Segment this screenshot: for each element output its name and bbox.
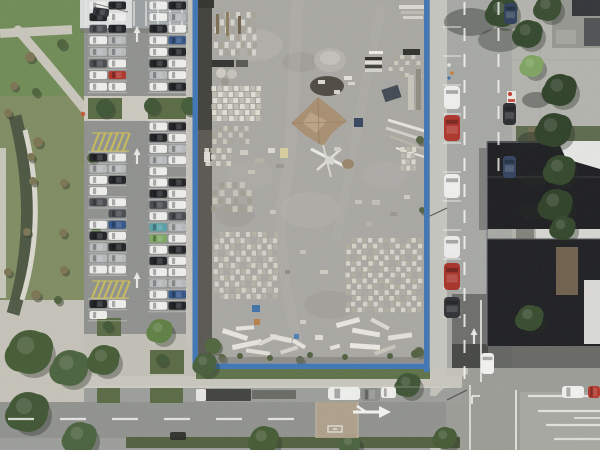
aerial-photo <box>0 0 600 450</box>
aerial-canvas <box>0 0 600 450</box>
grain-overlay <box>0 0 600 450</box>
